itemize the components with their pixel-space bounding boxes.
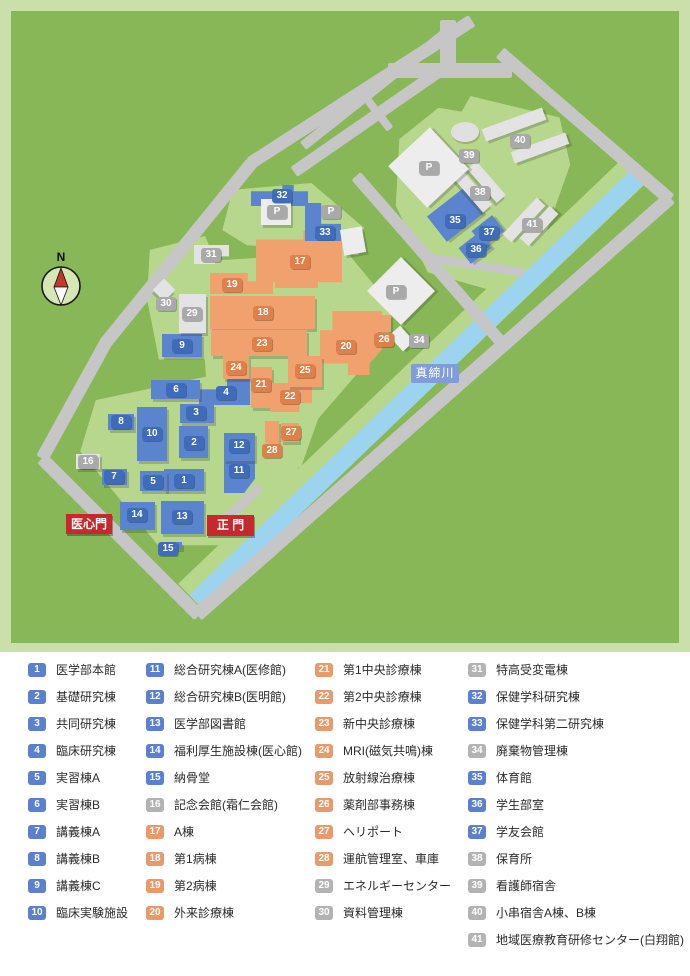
legend-number-badge: 25 <box>315 771 333 785</box>
building-number-8: 8 <box>111 415 131 429</box>
legend-label: 資料管理棟 <box>343 904 403 921</box>
legend-item-33: 33保健学科第二研究棟 <box>468 716 684 731</box>
legend-item-12: 12総合研究棟B(医明館) <box>146 689 302 704</box>
legend-label: 第1病棟 <box>174 850 217 867</box>
legend-item-10: 10臨床実験施設 <box>28 905 128 920</box>
legend-item-30: 30資料管理棟 <box>315 905 451 920</box>
legend-number-badge: 41 <box>468 933 486 947</box>
legend-item-41: 41地域医療教育研修センター(白翔館) <box>468 932 684 947</box>
building-number-13: 13 <box>172 510 192 524</box>
legend-label: 総合研究棟A(医修館) <box>174 661 286 678</box>
fountain-icon <box>451 122 479 142</box>
parking-chip: P <box>386 285 406 299</box>
compass-north-label: N <box>57 250 66 264</box>
building-number-1: 1 <box>174 474 194 488</box>
legend-item-4: 4臨床研究棟 <box>28 743 128 758</box>
legend-label: 保健学科第二研究棟 <box>496 715 604 732</box>
building-number-21: 21 <box>251 378 271 392</box>
legend-number-badge: 4 <box>28 744 46 758</box>
campus-map-page: 1234567891011121314151617181920212223242… <box>0 0 690 976</box>
legend-item-34: 34廃棄物管理棟 <box>468 743 684 758</box>
legend-label: 学友会館 <box>496 823 544 840</box>
legend-number-badge: 35 <box>468 771 486 785</box>
legend-number-badge: 8 <box>28 852 46 866</box>
legend-label: 実習棟A <box>56 769 100 786</box>
legend-label: 第1中央診療棟 <box>343 661 422 678</box>
legend-label: 臨床実験施設 <box>56 904 128 921</box>
legend-number-badge: 10 <box>28 906 46 920</box>
legend-label: 学生部室 <box>496 796 544 813</box>
legend-label: 小串宿舎A棟、B棟 <box>496 904 596 921</box>
legend-number-badge: 29 <box>315 879 333 893</box>
building-number-26: 26 <box>374 333 394 347</box>
legend-column-3: 21第1中央診療棟22第2中央診療棟23新中央診療棟24MRI(磁気共鳴)棟25… <box>315 662 451 932</box>
compass-rose-icon: N <box>38 248 84 312</box>
legend-item-7: 7講義棟A <box>28 824 128 839</box>
legend-number-badge: 1 <box>28 663 46 677</box>
legend-number-badge: 38 <box>468 852 486 866</box>
building-number-27: 27 <box>281 426 301 440</box>
legend-label: 納骨堂 <box>174 769 210 786</box>
legend-item-20: 20外来診療棟 <box>146 905 302 920</box>
legend-item-18: 18第1病棟 <box>146 851 302 866</box>
legend-label: 薬剤部事務棟 <box>343 796 415 813</box>
legend-label: 外来診療棟 <box>174 904 234 921</box>
building-number-5: 5 <box>143 475 163 489</box>
legend-item-17: 17A棟 <box>146 824 302 839</box>
legend-number-badge: 15 <box>146 771 164 785</box>
legend-label: 特高受変電棟 <box>496 661 568 678</box>
building-number-41: 41 <box>522 218 542 232</box>
building-number-2: 2 <box>184 436 204 450</box>
legend-item-21: 21第1中央診療棟 <box>315 662 451 677</box>
building-number-3: 3 <box>186 406 206 420</box>
building-26 <box>376 315 391 332</box>
legend-item-40: 40小串宿舎A棟、B棟 <box>468 905 684 920</box>
legend-label: 看護師宿舎 <box>496 877 556 894</box>
legend-number-badge: 19 <box>146 879 164 893</box>
building-number-40: 40 <box>510 134 530 148</box>
legend-item-16: 16記念会館(霜仁会館) <box>146 797 302 812</box>
building-number-10: 10 <box>142 427 162 441</box>
building-number-32: 32 <box>272 189 292 203</box>
legend-item-28: 28運航管理室、車庫 <box>315 851 451 866</box>
river-name-badge: 真締川 <box>411 364 459 383</box>
legend-label: 総合研究棟B(医明館) <box>174 688 286 705</box>
legend-number-badge: 27 <box>315 825 333 839</box>
legend-label: 臨床研究棟 <box>56 742 116 759</box>
building-number-37: 37 <box>479 226 499 240</box>
legend-number-badge: 5 <box>28 771 46 785</box>
legend-number-badge: 34 <box>468 744 486 758</box>
legend-number-badge: 12 <box>146 690 164 704</box>
building-number-31: 31 <box>201 248 221 262</box>
building-number-22: 22 <box>280 390 300 404</box>
legend-number-badge: 37 <box>468 825 486 839</box>
map-frame-bottom <box>0 643 690 652</box>
legend-item-25: 25放射線治療棟 <box>315 770 451 785</box>
legend-label: 医学部本館 <box>56 661 116 678</box>
campus-map: 1234567891011121314151617181920212223242… <box>0 0 690 652</box>
legend-label: 講義棟A <box>56 823 100 840</box>
building-number-11: 11 <box>229 464 249 478</box>
building-number-17: 17 <box>290 255 310 269</box>
building-number-33: 33 <box>315 226 335 240</box>
legend-item-24: 24MRI(磁気共鳴)棟 <box>315 743 451 758</box>
legend-item-22: 22第2中央診療棟 <box>315 689 451 704</box>
building-number-24: 24 <box>226 361 246 375</box>
legend-label: 基礎研究棟 <box>56 688 116 705</box>
legend-label: 医学部図書館 <box>174 715 246 732</box>
building-number-36: 36 <box>466 243 486 257</box>
map-legend: 1医学部本館2基礎研究棟3共同研究棟4臨床研究棟5実習棟A6実習棟B7講義棟A8… <box>0 652 690 976</box>
parking-lot <box>340 226 366 255</box>
legend-label: 福利厚生施設棟(医心館) <box>174 742 302 759</box>
legend-item-1: 1医学部本館 <box>28 662 128 677</box>
legend-item-32: 32保健学科研究棟 <box>468 689 684 704</box>
legend-label: 地域医療教育研修センター(白翔館) <box>496 931 684 948</box>
legend-item-3: 3共同研究棟 <box>28 716 128 731</box>
road <box>440 20 456 66</box>
legend-label: エネルギーセンター <box>343 877 451 894</box>
legend-item-9: 9講義棟C <box>28 878 128 893</box>
legend-label: 体育館 <box>496 769 532 786</box>
map-frame-top <box>0 0 690 11</box>
building-number-15: 15 <box>158 542 178 556</box>
parking-chip: P <box>419 161 439 175</box>
legend-item-19: 19第2病棟 <box>146 878 302 893</box>
legend-column-4: 31特高受変電棟32保健学科研究棟33保健学科第二研究棟34廃棄物管理棟35体育… <box>468 662 684 959</box>
building-number-25: 25 <box>295 364 315 378</box>
legend-label: 放射線治療棟 <box>343 769 415 786</box>
legend-number-badge: 36 <box>468 798 486 812</box>
legend-label: 保健学科研究棟 <box>496 688 580 705</box>
legend-number-badge: 28 <box>315 852 333 866</box>
legend-item-14: 14福利厚生施設棟(医心館) <box>146 743 302 758</box>
legend-number-badge: 31 <box>468 663 486 677</box>
building-number-30: 30 <box>156 297 176 311</box>
building-number-9: 9 <box>172 339 192 353</box>
map-frame-right <box>679 0 690 652</box>
legend-item-23: 23新中央診療棟 <box>315 716 451 731</box>
legend-item-37: 37学友会館 <box>468 824 684 839</box>
legend-item-13: 13医学部図書館 <box>146 716 302 731</box>
building-number-35: 35 <box>445 214 465 228</box>
building-number-12: 12 <box>229 439 249 453</box>
legend-number-badge: 33 <box>468 717 486 731</box>
legend-number-badge: 21 <box>315 663 333 677</box>
building-number-7: 7 <box>104 470 124 484</box>
legend-number-badge: 32 <box>468 690 486 704</box>
legend-item-36: 36学生部室 <box>468 797 684 812</box>
legend-number-badge: 24 <box>315 744 333 758</box>
legend-label: 第2病棟 <box>174 877 217 894</box>
legend-label: 廃棄物管理棟 <box>496 742 568 759</box>
legend-item-2: 2基礎研究棟 <box>28 689 128 704</box>
legend-number-badge: 22 <box>315 690 333 704</box>
legend-label: 講義棟C <box>56 877 101 894</box>
parking-chip: P <box>267 205 287 219</box>
legend-number-badge: 18 <box>146 852 164 866</box>
legend-number-badge: 6 <box>28 798 46 812</box>
building-number-19: 19 <box>222 278 242 292</box>
legend-item-8: 8講義棟B <box>28 851 128 866</box>
legend-label: 実習棟B <box>56 796 100 813</box>
legend-number-badge: 2 <box>28 690 46 704</box>
legend-number-badge: 3 <box>28 717 46 731</box>
building-number-28: 28 <box>262 444 282 458</box>
legend-number-badge: 30 <box>315 906 333 920</box>
legend-number-badge: 20 <box>146 906 164 920</box>
legend-number-badge: 26 <box>315 798 333 812</box>
building-number-34: 34 <box>409 334 429 348</box>
map-frame-left <box>0 0 11 652</box>
legend-number-badge: 9 <box>28 879 46 893</box>
legend-item-15: 15納骨堂 <box>146 770 302 785</box>
legend-number-badge: 16 <box>146 798 164 812</box>
legend-label: 講義棟B <box>56 850 100 867</box>
legend-item-31: 31特高受変電棟 <box>468 662 684 677</box>
building-number-6: 6 <box>166 383 186 397</box>
building-number-23: 23 <box>252 337 272 351</box>
legend-item-35: 35体育館 <box>468 770 684 785</box>
legend-item-29: 29エネルギーセンター <box>315 878 451 893</box>
legend-item-27: 27ヘリポート <box>315 824 451 839</box>
legend-label: 運航管理室、車庫 <box>343 850 439 867</box>
legend-number-badge: 23 <box>315 717 333 731</box>
legend-item-26: 26薬剤部事務棟 <box>315 797 451 812</box>
legend-number-badge: 7 <box>28 825 46 839</box>
legend-number-badge: 40 <box>468 906 486 920</box>
legend-number-badge: 17 <box>146 825 164 839</box>
building-number-14: 14 <box>127 508 147 522</box>
parking-chip: P <box>321 205 341 219</box>
building-number-16: 16 <box>78 455 98 469</box>
legend-item-39: 39看護師宿舎 <box>468 878 684 893</box>
legend-label: 記念会館(霜仁会館) <box>174 796 278 813</box>
legend-label: A棟 <box>174 823 194 840</box>
legend-item-6: 6実習棟B <box>28 797 128 812</box>
legend-label: 保育所 <box>496 850 532 867</box>
legend-label: MRI(磁気共鳴)棟 <box>343 742 433 759</box>
legend-number-badge: 13 <box>146 717 164 731</box>
building-number-18: 18 <box>253 306 273 320</box>
building-number-20: 20 <box>336 340 356 354</box>
legend-item-38: 38保育所 <box>468 851 684 866</box>
building-number-4: 4 <box>216 386 236 400</box>
legend-label: ヘリポート <box>343 823 403 840</box>
legend-number-badge: 11 <box>146 663 164 677</box>
gate-label-main-gate: 正 門 <box>207 515 254 536</box>
legend-column-2: 11総合研究棟A(医修館)12総合研究棟B(医明館)13医学部図書館14福利厚生… <box>146 662 302 932</box>
legend-label: 第2中央診療棟 <box>343 688 422 705</box>
gate-label-ishinmon: 医心門 <box>66 514 112 534</box>
legend-item-5: 5実習棟A <box>28 770 128 785</box>
building-number-39: 39 <box>459 149 479 163</box>
legend-item-11: 11総合研究棟A(医修館) <box>146 662 302 677</box>
building-number-29: 29 <box>182 307 202 321</box>
legend-number-badge: 39 <box>468 879 486 893</box>
legend-label: 共同研究棟 <box>56 715 116 732</box>
legend-number-badge: 14 <box>146 744 164 758</box>
building-number-38: 38 <box>470 186 490 200</box>
legend-column-1: 1医学部本館2基礎研究棟3共同研究棟4臨床研究棟5実習棟A6実習棟B7講義棟A8… <box>28 662 128 932</box>
legend-label: 新中央診療棟 <box>343 715 415 732</box>
